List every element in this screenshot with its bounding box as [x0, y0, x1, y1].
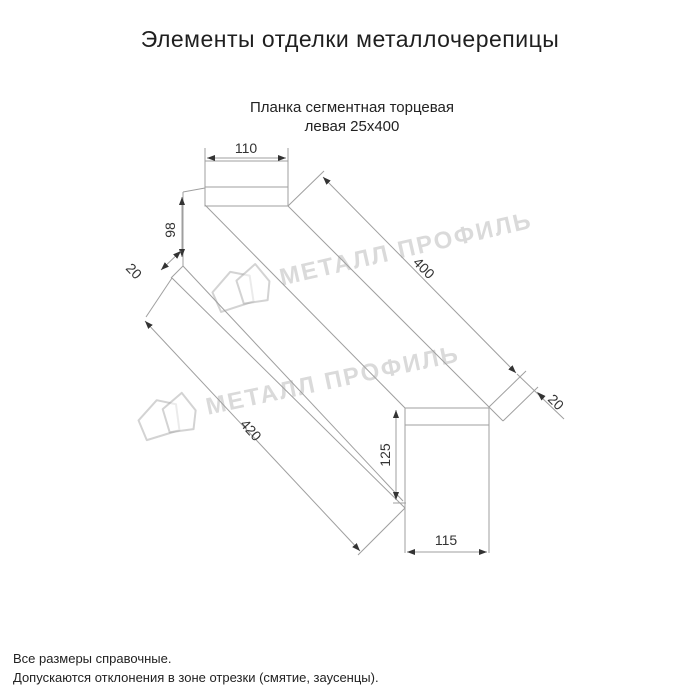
dim-cap-width: 110	[235, 140, 258, 156]
footer-note-1: Все размеры справочные.	[13, 649, 379, 668]
footer-notes: Все размеры справочные. Допускаются откл…	[13, 649, 379, 687]
dimension-lines	[145, 158, 564, 552]
dim-length-top: 400	[410, 254, 438, 282]
footer-note-2: Допускаются отклонения в зоне отрезки (с…	[13, 668, 379, 687]
technical-drawing: 110 98 20 400 20 420 125 115	[0, 0, 700, 700]
dim-face-height: 98	[162, 222, 178, 238]
dim-near-hem: 20	[123, 260, 145, 282]
dimension-labels: 110 98 20 400 20 420 125 115	[123, 140, 567, 548]
dim-end-width: 115	[435, 532, 458, 548]
dim-end-height: 125	[377, 443, 393, 467]
dim-far-hem: 20	[545, 391, 567, 413]
extension-lines	[146, 148, 538, 555]
strip-outline	[171, 161, 503, 553]
dim-length-bottom: 420	[237, 416, 265, 444]
